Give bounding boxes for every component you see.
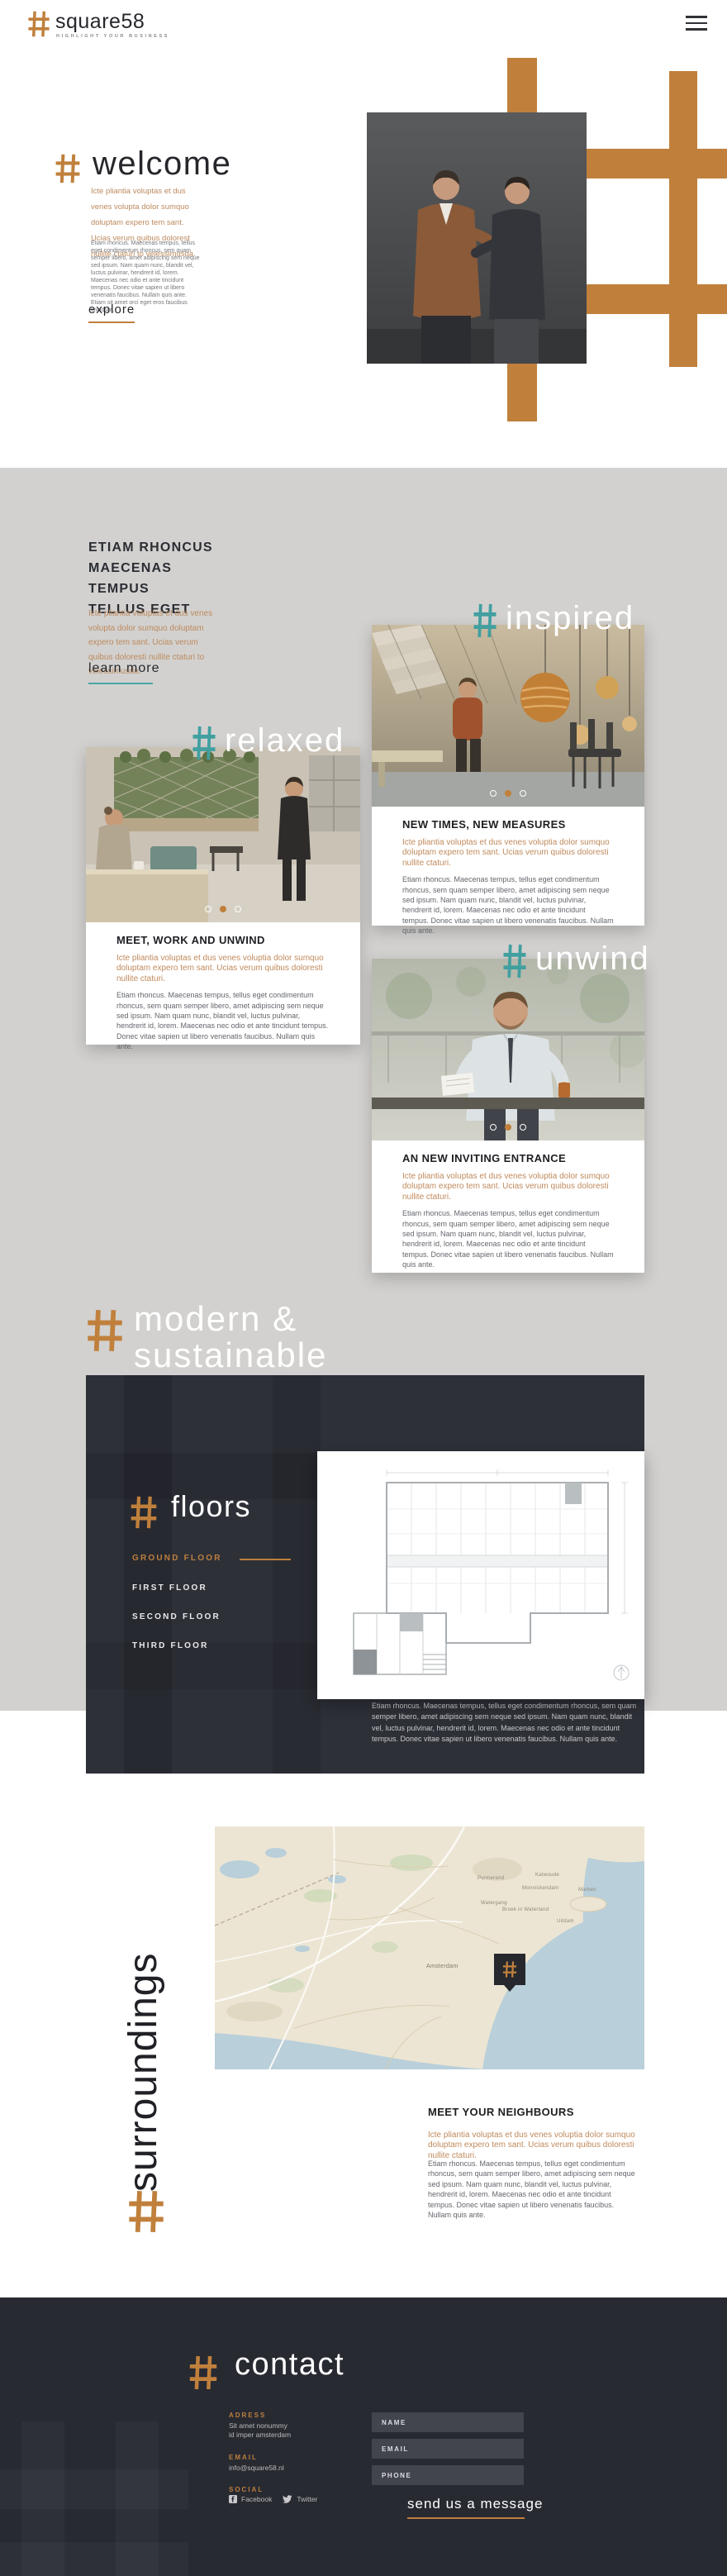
- card-entrance: AN NEW INVITING ENTRANCE Icte pliantia v…: [372, 959, 644, 1273]
- overlay-word-inspired: inspired: [506, 600, 634, 637]
- facebook-icon[interactable]: [229, 2495, 237, 2503]
- explore-underline: [88, 321, 135, 323]
- neighbours-body: Etiam rhoncus. Maecenas tempus, tellus e…: [428, 2159, 638, 2220]
- inspired-hash-icon: [473, 603, 497, 638]
- map-pin[interactable]: [494, 1954, 525, 1985]
- neighbourhood-map[interactable]: Purmerend Katwoude Monnickendam Marken W…: [215, 1826, 644, 2069]
- contact-title: contact: [235, 2347, 344, 2383]
- deco-hash-bar: [669, 71, 697, 367]
- floor-plan-drawing: [317, 1451, 644, 1699]
- cafe-photo: [86, 747, 360, 922]
- floor-menu-second[interactable]: SECOND FLOOR: [132, 1612, 221, 1621]
- floor-menu-ground[interactable]: GROUND FLOOR: [132, 1554, 222, 1563]
- carousel-dots[interactable]: [490, 790, 526, 797]
- explore-link[interactable]: explore: [88, 302, 135, 317]
- card-title: AN NEW INVITING ENTRANCE: [402, 1152, 614, 1164]
- floor-active-indicator: [240, 1559, 291, 1560]
- floor-menu-third[interactable]: THIRD FLOOR: [132, 1641, 209, 1650]
- address-label: ADRESS: [229, 2412, 266, 2419]
- carousel-dot-active[interactable]: [505, 1124, 511, 1131]
- card-intro: Icte pliantia voluptas et dus venes volu…: [402, 838, 614, 869]
- phone-input[interactable]: [372, 2465, 524, 2485]
- facebook-link[interactable]: Facebook: [241, 2495, 272, 2503]
- map-label: Purmerend: [478, 1876, 504, 1881]
- modern-sustainable-title: modern & sustainable: [134, 1301, 327, 1374]
- surroundings-hash-icon: [127, 2190, 165, 2233]
- learn-more-underline: [88, 683, 153, 684]
- header: square58 HIGHLIGHT YOUR BUSINESS: [0, 0, 727, 99]
- social-label: SOCIAL: [229, 2486, 264, 2493]
- email-value[interactable]: info@square58.nl: [229, 2464, 284, 2473]
- carousel-dot[interactable]: [490, 790, 497, 797]
- modern-line2: sustainable: [134, 1337, 327, 1374]
- card-new-times: NEW TIMES, NEW MEASURES Icte pliantia vo…: [372, 625, 644, 926]
- surroundings-title: surroundings: [121, 1889, 166, 2192]
- logo[interactable]: square58 HIGHLIGHT YOUR BUSINESS: [27, 10, 209, 43]
- deco-hash-bar-footer: [0, 2542, 188, 2576]
- hero-photo: [367, 112, 587, 364]
- floors-title: floors: [171, 1489, 251, 1524]
- address-line1: Sit amet nonummy: [229, 2421, 287, 2431]
- map-pin-hash-icon: [502, 1961, 517, 1978]
- card-body: Etiam rhoncus. Maecenas tempus, tellus e…: [116, 990, 330, 1051]
- man-coffee-photo: [372, 959, 644, 1140]
- relaxed-hash-icon: [192, 726, 216, 760]
- card-intro: Icte pliantia voluptas et dus venes volu…: [116, 954, 330, 984]
- brand-tagline: HIGHLIGHT YOUR BUSINESS: [56, 34, 169, 39]
- address-line2: id imper amsterdam: [229, 2431, 291, 2440]
- carousel-dot[interactable]: [235, 906, 241, 912]
- deco-hash-bar-dark: [273, 1375, 321, 1774]
- welcome-hash-icon: [55, 154, 81, 183]
- carousel-dot[interactable]: [520, 790, 526, 797]
- send-message-button[interactable]: send us a message: [407, 2496, 543, 2512]
- card-body: Etiam rhoncus. Maecenas tempus, tellus e…: [402, 874, 614, 936]
- card-intro: Icte pliantia voluptas et dus venes volu…: [402, 1172, 614, 1202]
- floors-hash-icon: [130, 1496, 158, 1529]
- twitter-icon[interactable]: [283, 2495, 292, 2503]
- carousel-dot[interactable]: [205, 906, 211, 912]
- modern-line1: modern &: [134, 1301, 327, 1337]
- contact-hash-icon: [188, 2355, 218, 2390]
- map-label: Broek in Waterland: [502, 1907, 549, 1912]
- send-message-underline: [407, 2517, 525, 2519]
- social-links: Facebook Twitter: [229, 2495, 317, 2503]
- map-label: Marken: [578, 1888, 596, 1893]
- intro-title-line: ETIAM RHONCUS: [88, 537, 229, 558]
- learn-more-link[interactable]: learn more: [88, 661, 159, 676]
- modern-hash-icon: [86, 1309, 124, 1352]
- map-label: Monnickendam: [522, 1886, 558, 1891]
- overlay-word-unwind: unwind: [535, 940, 650, 978]
- hamburger-menu-icon[interactable]: [686, 16, 707, 31]
- brand-name: square58: [55, 10, 145, 34]
- overlay-word-relaxed: relaxed: [225, 722, 344, 759]
- neighbours-title: MEET YOUR NEIGHBOURS: [428, 2106, 643, 2118]
- unwind-hash-icon: [502, 944, 527, 978]
- card-body: Etiam rhoncus. Maecenas tempus, tellus e…: [402, 1208, 614, 1269]
- neighbours-intro: Icte pliantia voluptas et dus venes volu…: [428, 2131, 638, 2161]
- carousel-dot-active[interactable]: [505, 790, 511, 797]
- carousel-dot[interactable]: [490, 1124, 497, 1131]
- page: square58 HIGHLIGHT YOUR BUSINESS welcome: [0, 0, 727, 2576]
- card-title: NEW TIMES, NEW MEASURES: [402, 818, 614, 831]
- deco-hash-bar-dark: [124, 1375, 172, 1774]
- carousel-dots[interactable]: [205, 906, 241, 912]
- intro-title-line: MAECENAS TEMPUS: [88, 558, 229, 599]
- carousel-dot[interactable]: [520, 1124, 526, 1131]
- map-drawing: [215, 1826, 644, 2069]
- carousel-dot-active[interactable]: [220, 906, 226, 912]
- map-label: Watergang: [481, 1901, 507, 1906]
- welcome-title: welcome: [93, 145, 231, 183]
- restaurant-photo: [372, 625, 644, 807]
- card-title: MEET, WORK AND UNWIND: [116, 934, 330, 946]
- card-meet-work: MEET, WORK AND UNWIND Icte pliantia volu…: [86, 747, 360, 1045]
- map-label: Katwoude: [535, 1873, 559, 1878]
- floor-plan-panel: [317, 1451, 644, 1699]
- deco-hash-bar-footer: [0, 2469, 188, 2509]
- map-label: Uitdam: [557, 1919, 574, 1924]
- name-input[interactable]: [372, 2412, 524, 2432]
- floors-body: Etiam rhoncus. Maecenas tempus, tellus e…: [372, 1701, 638, 1745]
- map-label-amsterdam: Amsterdam: [426, 1964, 459, 1969]
- email-input[interactable]: [372, 2439, 524, 2459]
- map-pin-pointer: [504, 1985, 516, 1992]
- floor-menu-first[interactable]: FIRST FLOOR: [132, 1583, 207, 1593]
- carousel-dots[interactable]: [490, 1124, 526, 1131]
- logo-hash-icon: [27, 11, 50, 37]
- email-label: EMAIL: [229, 2454, 258, 2461]
- footer: contact ADRESS Sit amet nonummy id imper…: [0, 2297, 727, 2576]
- twitter-link[interactable]: Twitter: [297, 2495, 317, 2503]
